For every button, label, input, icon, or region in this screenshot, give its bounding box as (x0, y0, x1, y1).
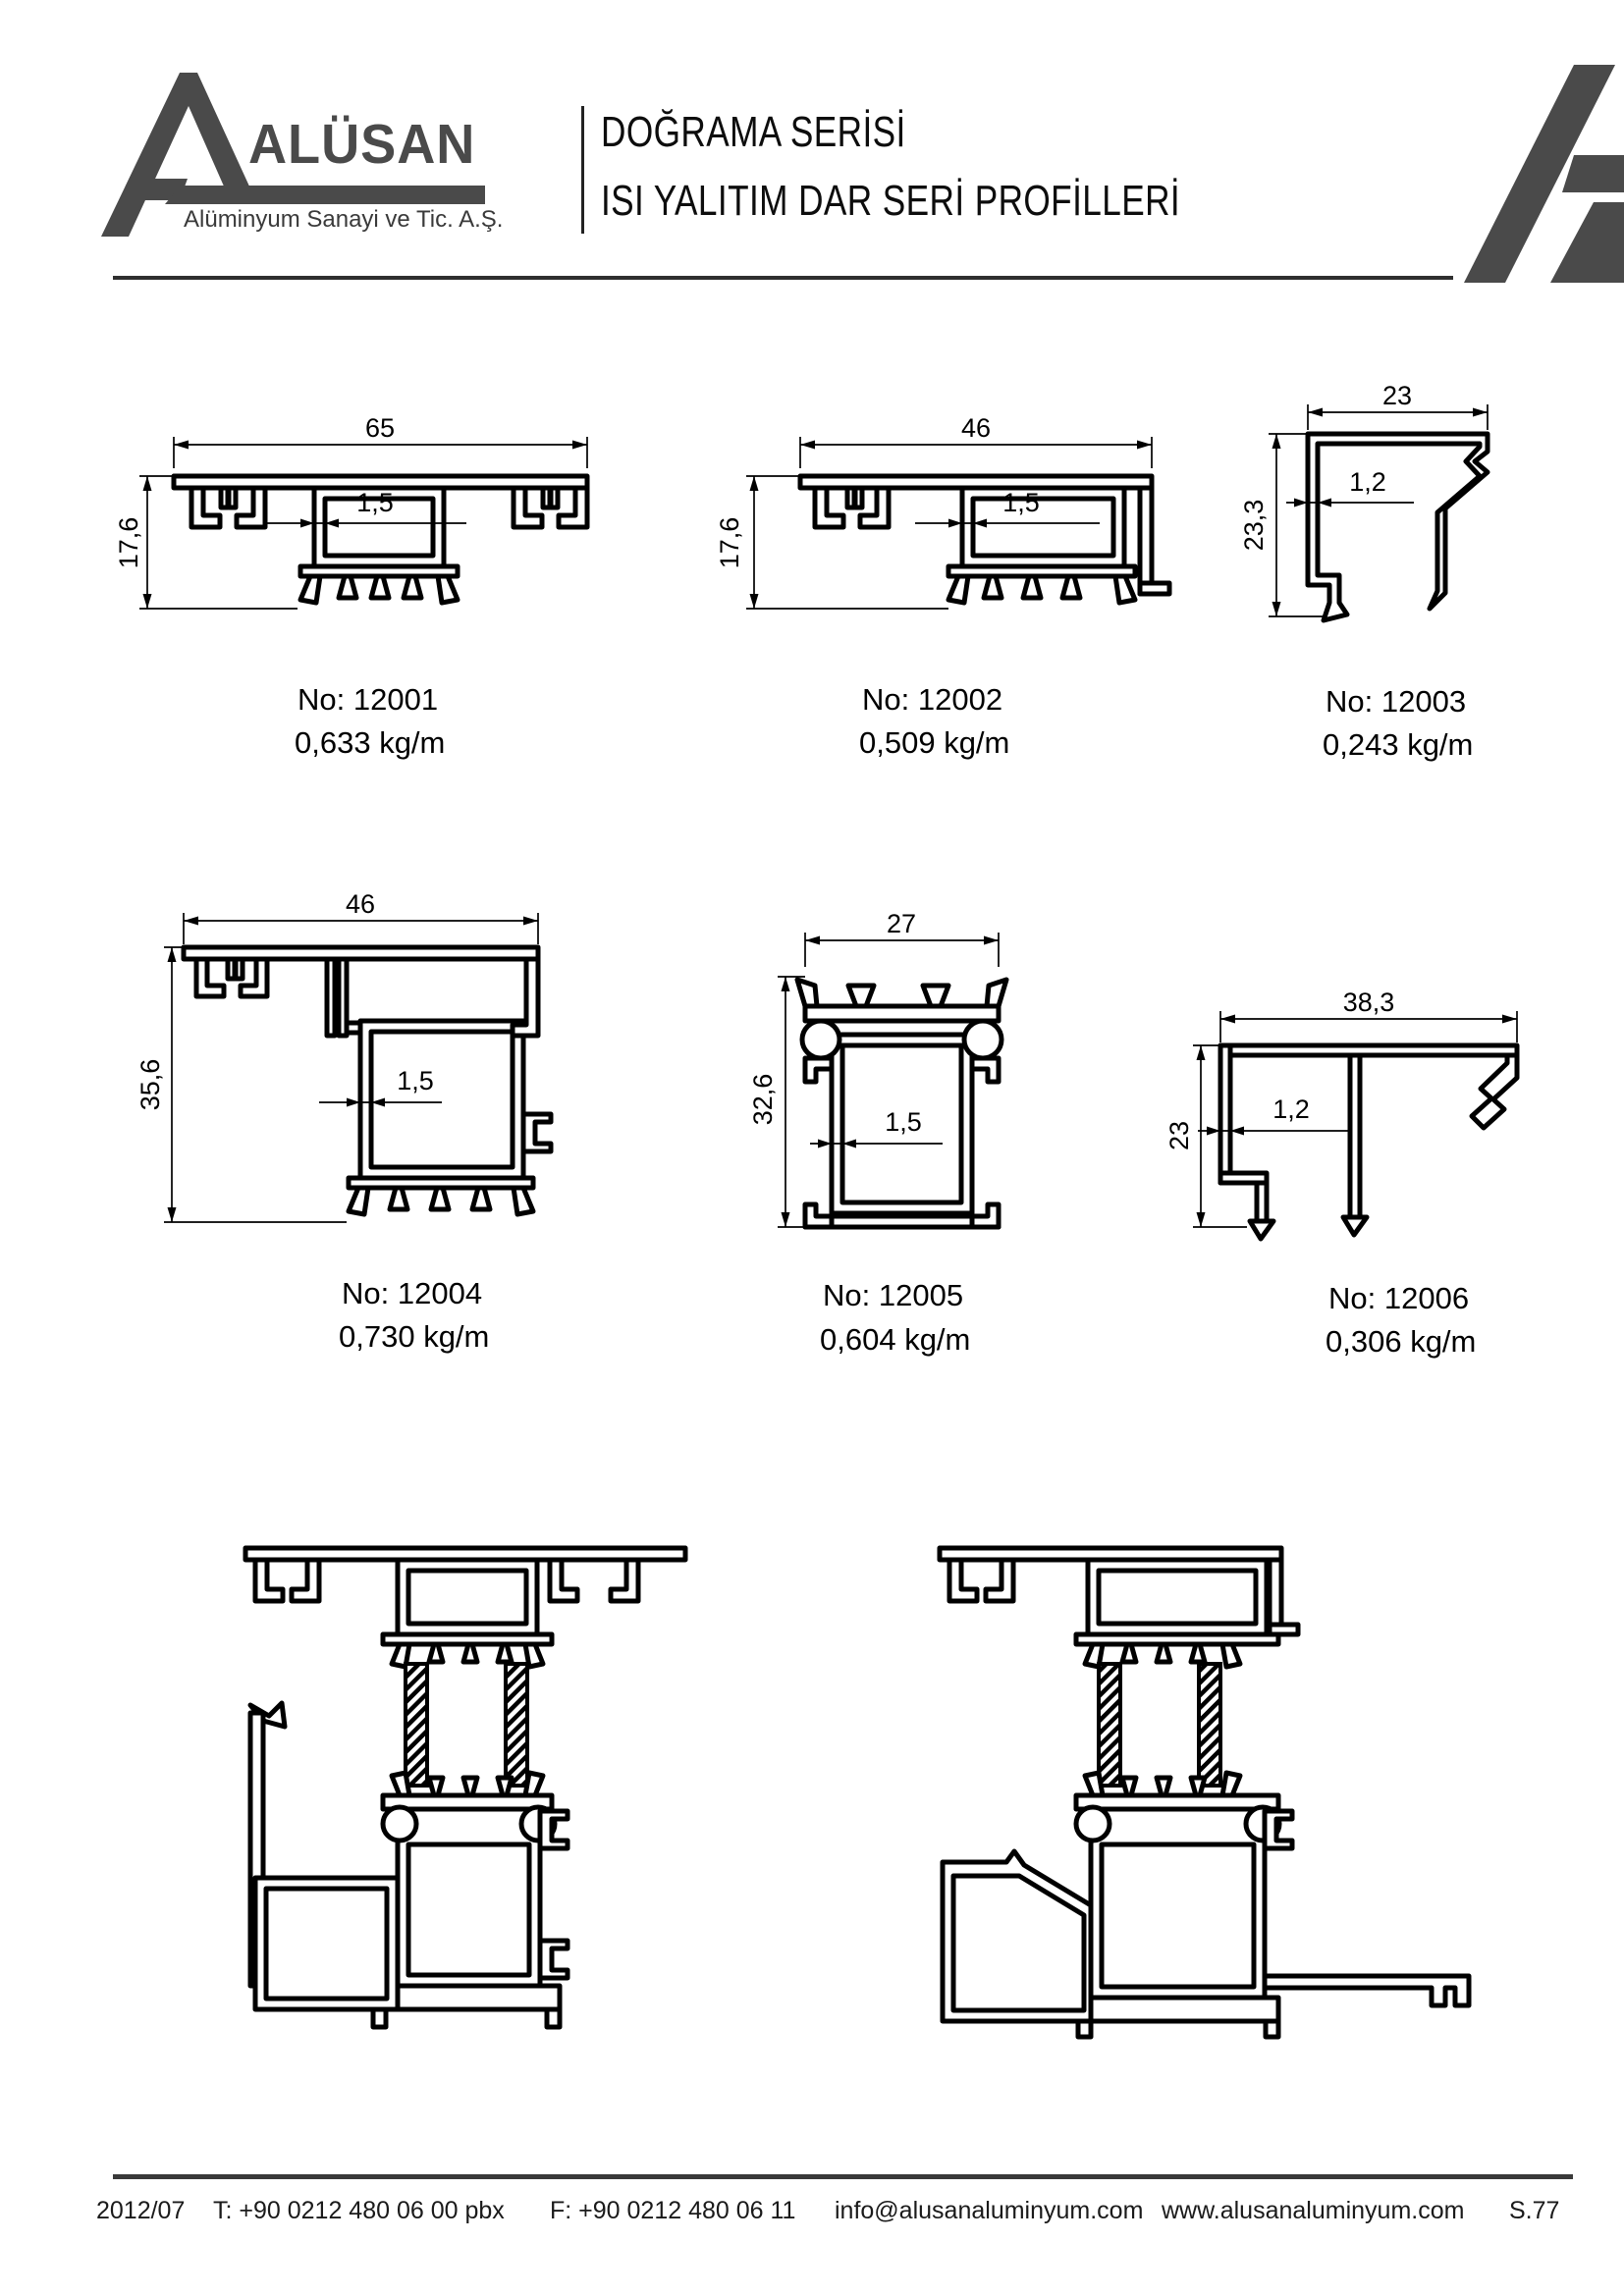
width-dim-label: 65 (365, 413, 395, 443)
profile-outline (1220, 1045, 1517, 1239)
profile-drawing-12002: 46 17,6 1,5 (687, 407, 1198, 771)
wall-dim-label: 1,2 (1272, 1095, 1310, 1124)
width-dimension: 46 (184, 889, 538, 944)
profile-drawing-12001: 65 17,6 (118, 407, 648, 771)
width-dim-label: 23 (1382, 383, 1412, 410)
top-frame-profile (245, 1548, 685, 1667)
profile-weight-label: 0,243 kg/m (1323, 727, 1473, 762)
width-dim-label: 46 (346, 889, 375, 919)
brand-name: ALÜSAN (248, 112, 475, 177)
profile-outline (797, 980, 1006, 1227)
height-dimension: 17,6 (715, 476, 948, 609)
side-angle-profile (943, 1851, 1091, 2021)
width-dimension: 65 (174, 413, 587, 468)
footer-page-number: S.77 (1509, 2197, 1559, 2225)
corner-logo-icon (1456, 57, 1624, 285)
width-dim-label: 27 (887, 909, 916, 938)
profile-drawing-12004: 46 35,6 (118, 883, 668, 1355)
catalog-page: ALÜSAN Alüminyum Sanayi ve Tic. A.Ş. DOĞ… (0, 0, 1624, 2296)
height-dimension: 32,6 (748, 977, 805, 1227)
profile-number-label: No: 12006 (1328, 1281, 1469, 1315)
wall-dim-label: 1,2 (1349, 467, 1386, 497)
height-dimension: 17,6 (118, 476, 298, 609)
height-dim-label: 32,6 (748, 1074, 778, 1126)
logo-bar (165, 186, 485, 204)
thermal-break-strips (406, 1664, 527, 1786)
footer-phone: T: +90 0212 480 06 00 pbx (213, 2197, 505, 2225)
footer-rule (113, 2174, 1573, 2179)
profile-number-label: No: 12001 (298, 682, 438, 717)
profile-outline (184, 947, 551, 1214)
profile-drawing-12003: 23 23,3 1,2 No: 12003 0,243 kg/m (1237, 383, 1610, 775)
width-dimension: 38,3 (1220, 988, 1517, 1042)
profile-number-label: No: 12004 (342, 1276, 482, 1310)
assembly-drawing-right (913, 1517, 1522, 2076)
wall-dim-label: 1,5 (356, 488, 394, 517)
header-rule (113, 276, 1453, 280)
profile-weight-label: 0,306 kg/m (1326, 1324, 1476, 1359)
height-dim-label: 23 (1164, 1121, 1194, 1150)
height-dimension: 23 (1164, 1045, 1247, 1227)
side-angle-profile (250, 1703, 398, 2009)
top-frame-profile (940, 1548, 1298, 1667)
footer-fax: F: +90 0212 480 06 11 (550, 2197, 795, 2225)
footer-edition: 2012/07 (96, 2197, 185, 2225)
wall-dim-label: 1,5 (1002, 488, 1040, 517)
height-dim-label: 17,6 (715, 517, 744, 569)
width-dimension: 46 (800, 413, 1152, 468)
width-dim-label: 38,3 (1343, 988, 1395, 1017)
profile-number-label: No: 12003 (1326, 684, 1466, 719)
profile-outline (800, 476, 1169, 603)
page-title-line2: ISI YALITIM DAR SERİ PROFİLLERİ (601, 177, 1180, 226)
profile-number-label: No: 12005 (823, 1278, 963, 1312)
profile-weight-label: 0,509 kg/m (859, 725, 1009, 760)
profile-drawing-12006: 38,3 23 1,2 No: 12006 0,306 kg/m (1139, 982, 1610, 1374)
wall-dim-label: 1,5 (885, 1107, 922, 1137)
profile-drawing-12005: 27 32,6 1,5 (707, 903, 1119, 1364)
height-dim-label: 23,3 (1239, 500, 1269, 552)
width-dimension: 23 (1308, 383, 1488, 430)
width-dimension: 27 (805, 909, 999, 967)
wall-dim-label: 1,5 (397, 1066, 434, 1095)
profile-weight-label: 0,604 kg/m (820, 1322, 970, 1357)
brand-subtitle: Alüminyum Sanayi ve Tic. A.Ş. (184, 206, 503, 234)
profile-weight-label: 0,730 kg/m (339, 1319, 489, 1354)
bottom-frame-profile (373, 1773, 568, 2027)
profile-weight-label: 0,633 kg/m (295, 725, 445, 760)
height-dim-label: 17,6 (118, 517, 143, 569)
profile-number-label: No: 12002 (862, 682, 1002, 717)
footer-email: info@alusanaluminyum.com (835, 2197, 1143, 2225)
thermal-break-strips (1099, 1664, 1220, 1786)
title-divider (581, 106, 584, 234)
footer-website: www.alusanaluminyum.com (1162, 2197, 1464, 2225)
profile-outline (1308, 434, 1488, 620)
page-title-line1: DOĞRAMA SERİSİ (601, 108, 906, 157)
height-dim-label: 35,6 (135, 1059, 165, 1111)
width-dim-label: 46 (961, 413, 991, 443)
bottom-frame-profile (1076, 1773, 1469, 2037)
assembly-drawing-left (226, 1517, 815, 2066)
